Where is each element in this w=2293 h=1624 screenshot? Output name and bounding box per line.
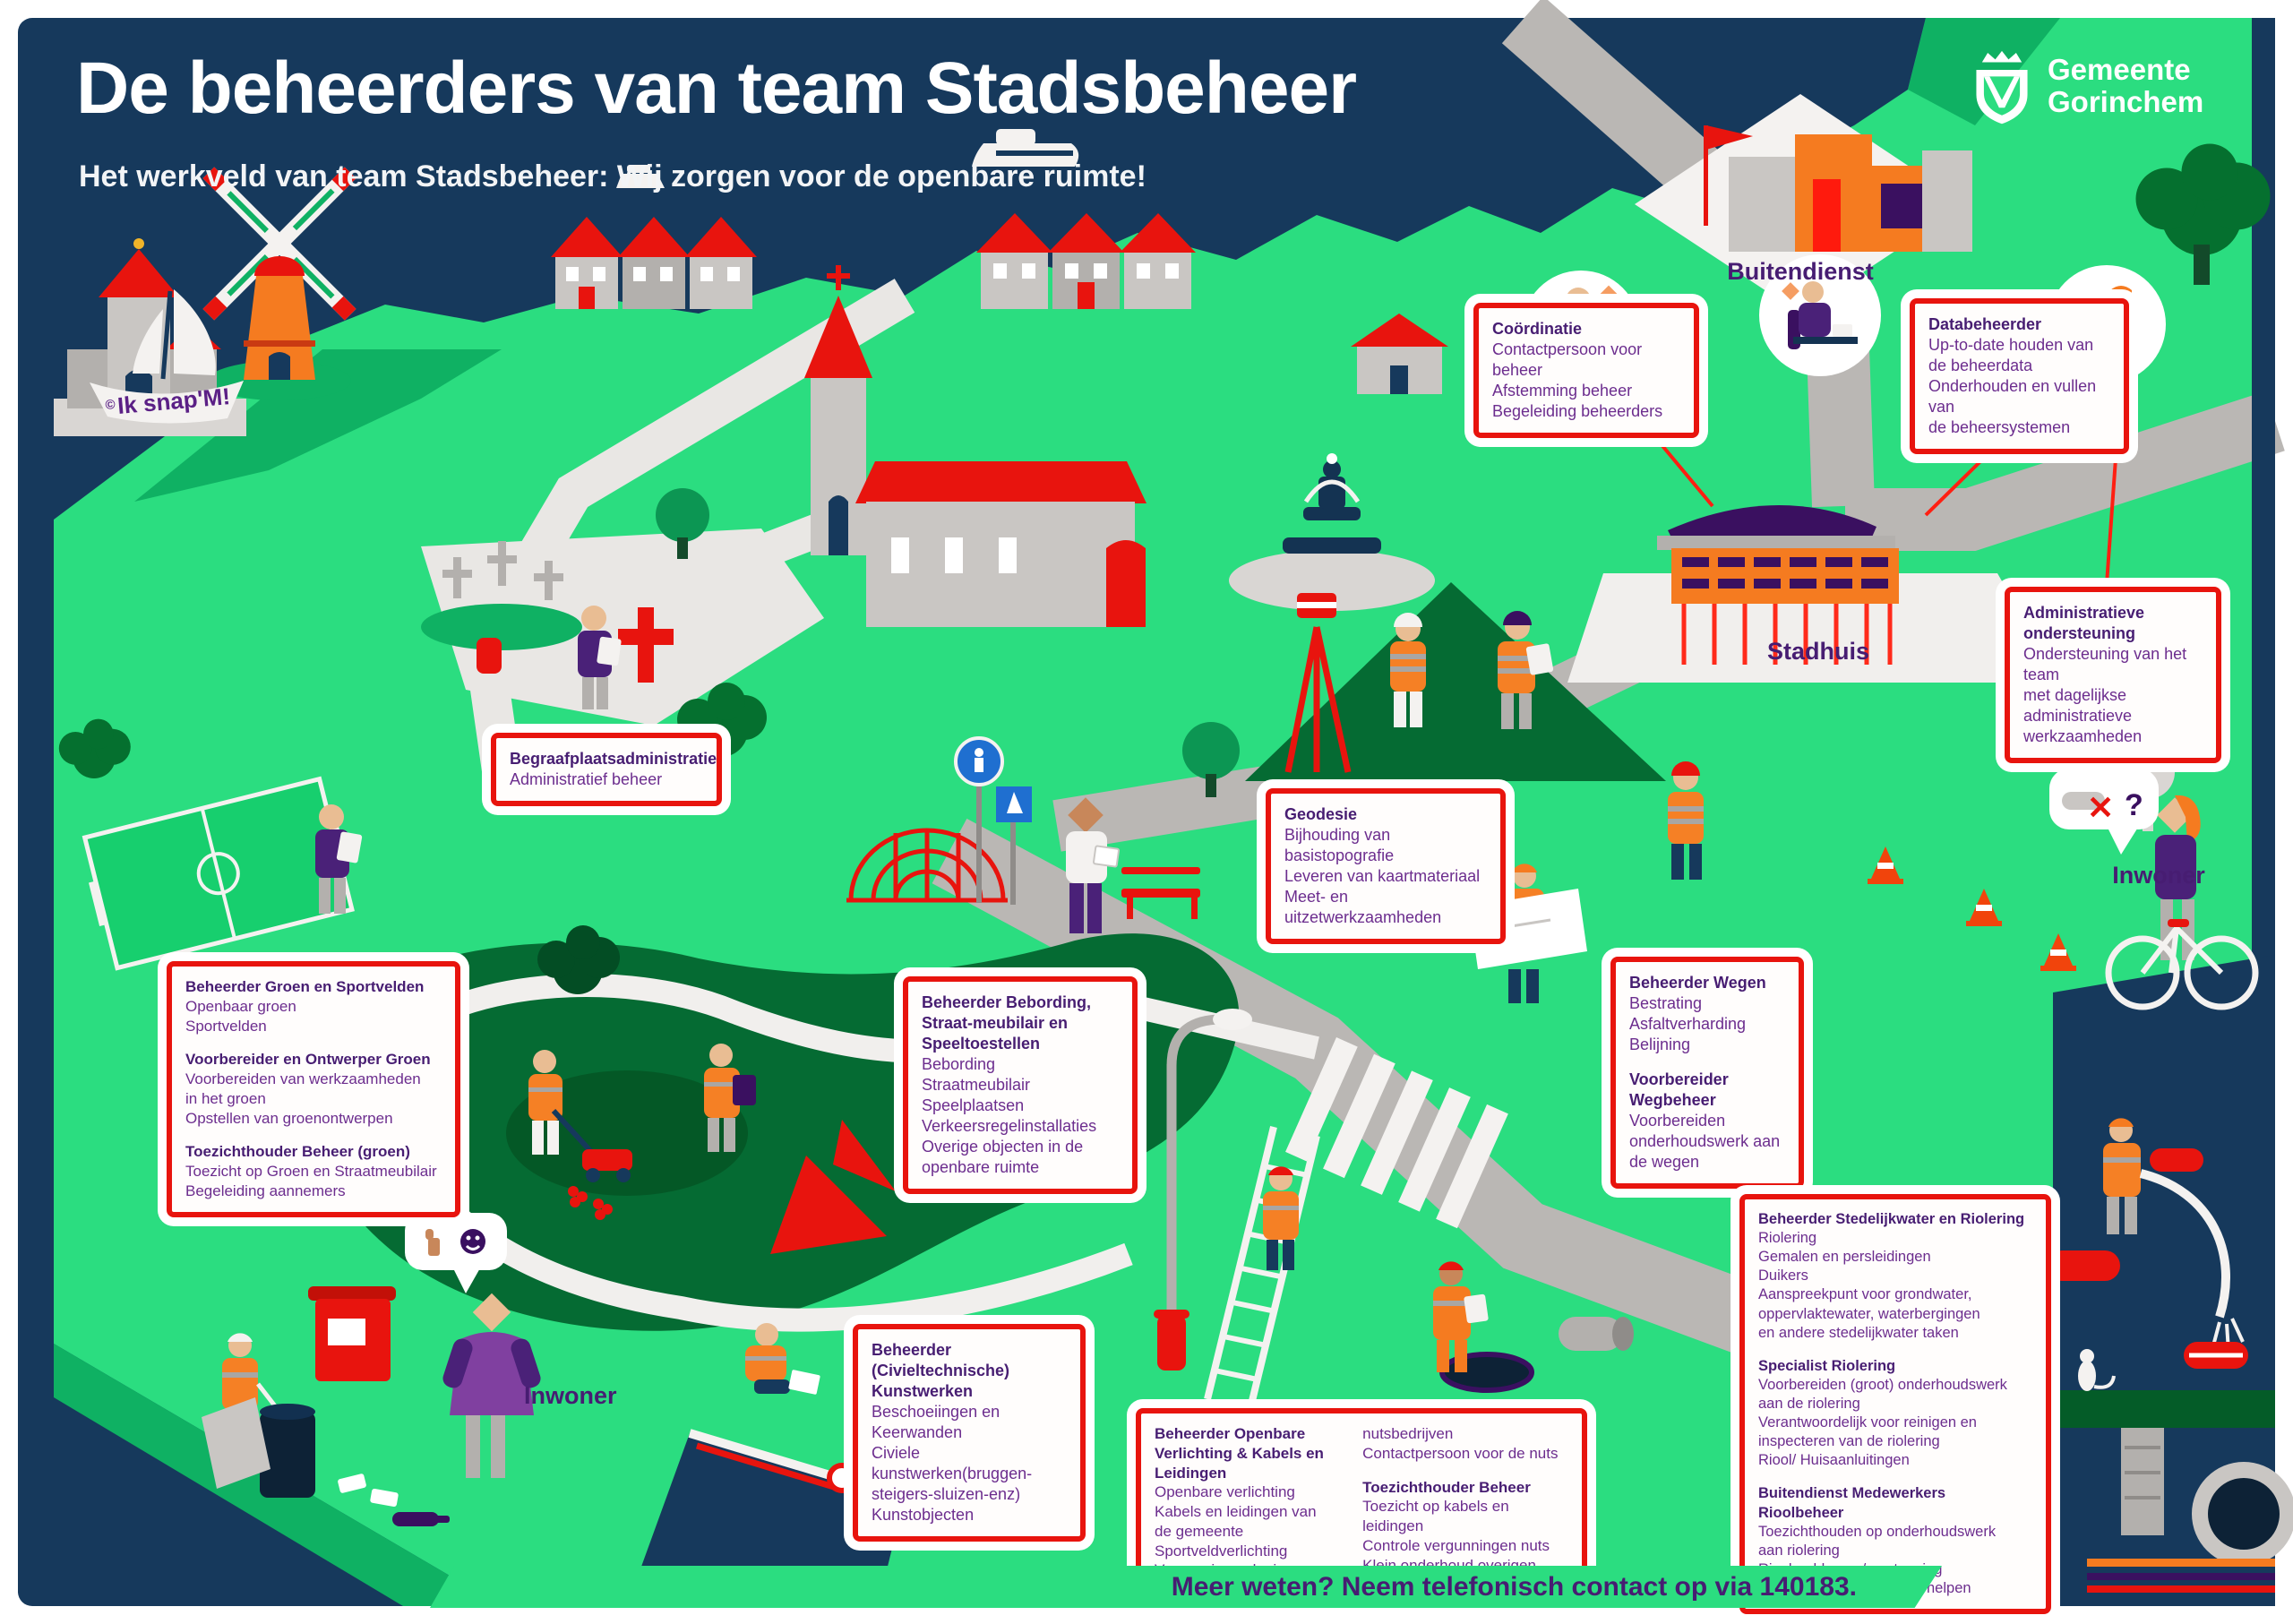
callout-section: Beheerder Openbare Verlichting & Kabels …	[1155, 1424, 1344, 1580]
callout-body: Contactpersoon voor beheer Afstemming be…	[1492, 339, 1680, 422]
callout-body: Toezicht op Groen en Straatmeubilair Beg…	[185, 1162, 442, 1201]
callout-section: Voorbereider Wegbeheer Voorbereiden onde…	[1629, 1070, 1785, 1173]
callout-section: Administratieve ondersteuning Ondersteun…	[2023, 603, 2203, 747]
callout-begraafplaatsadministratie: Begraafplaatsadministratie Administratie…	[491, 733, 722, 806]
callout-section: Beheerder Wegen Bestrating Asfaltverhard…	[1629, 973, 1785, 1055]
callout-section: Beheerder Bebording, Straat-meubilair en…	[922, 992, 1119, 1178]
callout-groen-sportvelden: Beheerder Groen en Sportvelden Openbaar …	[167, 961, 460, 1217]
label-stadhuis: Stadhuis	[1729, 638, 1908, 666]
callout-body: Bebording Straatmeubilair Speelplaatsen …	[922, 1054, 1119, 1178]
label-inwoner-left: Inwoner	[524, 1382, 649, 1410]
callout-section: Begraafplaatsadministratie Administratie…	[510, 749, 703, 790]
waste-container	[308, 1286, 396, 1381]
callout-body: Toezicht op kabels en leidingen Controle…	[1362, 1497, 1568, 1575]
callout-body: Bestrating Asfaltverharding Belijning	[1629, 993, 1785, 1055]
callout-body: Openbaar groen Sportvelden	[185, 997, 442, 1036]
label-inwoner-right: Inwoner	[2096, 862, 2221, 889]
callout-title: Toezichthouder Beheer (groen)	[185, 1142, 442, 1162]
callout-title: Buitendienst Medewerkers Rioolbeheer	[1758, 1484, 2032, 1522]
callout-bebording: Beheerder Bebording, Straat-meubilair en…	[903, 976, 1138, 1194]
ik-snapm-badge: © Ik snap'M!	[73, 282, 257, 434]
callout-section: nutsbedrijven Contactpersoon voor de nut…	[1362, 1424, 1568, 1464]
callout-section: Toezichthouder Beheer Toezicht op kabels…	[1362, 1478, 1568, 1576]
callout-title: Toezichthouder Beheer	[1362, 1478, 1568, 1498]
callout-title: Voorbereider en Ontwerper Groen	[185, 1050, 442, 1070]
callout-stedelijkwater-riolering: Beheerder Stedelijkwater en Riolering Ri…	[1739, 1194, 2051, 1614]
callout-title: Geodesie	[1284, 804, 1487, 825]
callout-kunstwerken: Beheerder (Civieltechnische) Kunstwerken…	[853, 1324, 1086, 1542]
callout-body: Ondersteuning van het team met dagelijks…	[2023, 644, 2203, 747]
smiley-icon	[460, 1229, 485, 1254]
gemeente-gorinchem-logo: Gemeente Gorinchem	[1969, 48, 2203, 125]
callout-body: Riolering Gemalen en persleidingen Duike…	[1758, 1229, 2032, 1343]
callout-column-right: nutsbedrijven Contactpersoon voor de nut…	[1362, 1424, 1568, 1580]
callout-title: Administratieve ondersteuning	[2023, 603, 2203, 644]
page-title: De beheerders van team Stadsbeheer	[76, 47, 1356, 131]
callout-body: nutsbedrijven Contactpersoon voor de nut…	[1362, 1424, 1568, 1464]
trash-bin	[260, 1404, 315, 1498]
callout-databeheerder: Databeheerder Up-to-date houden van de b…	[1910, 298, 2129, 454]
callout-title: Databeheerder	[1928, 314, 2110, 335]
badge-copyright: ©	[105, 397, 116, 413]
callout-title: Begraafplaatsadministratie	[510, 749, 703, 769]
question-icon: ?	[2125, 788, 2143, 822]
callout-title: Beheerder Wegen	[1629, 973, 1785, 993]
callout-wegen: Beheerder Wegen Bestrating Asfaltverhard…	[1610, 957, 1804, 1189]
pipe-segment	[1559, 1317, 1634, 1351]
callout-section: Beheerder (Civieltechnische) Kunstwerken…	[872, 1340, 1067, 1525]
footer-text: Meer weten? Neem telefonisch contact op …	[1172, 1572, 1857, 1603]
callout-body: Beschoeiingen en Keerwanden Civiele kuns…	[872, 1402, 1067, 1525]
footer-bar: Meer weten? Neem telefonisch contact op …	[430, 1566, 1942, 1608]
callout-geodesie: Geodesie Bijhouding van basistopografie …	[1266, 788, 1506, 944]
callout-coordinatie: Coördinatie Contactpersoon voor beheer A…	[1473, 303, 1699, 438]
callout-section: Coördinatie Contactpersoon voor beheer A…	[1492, 319, 1680, 422]
callout-body: Voorbereiden van werkzaamheden in het gr…	[185, 1070, 442, 1128]
callout-section: Geodesie Bijhouding van basistopografie …	[1284, 804, 1487, 928]
callout-body: Voorbereiden (groot) onderhoudswerk aan …	[1758, 1376, 2032, 1471]
page-subtitle: Het werkveld van team Stadsbeheer: Wij z…	[79, 159, 1146, 194]
callout-section: Toezichthouder Beheer (groen) Toezicht o…	[185, 1142, 442, 1200]
callout-section: Beheerder Groen en Sportvelden Openbaar …	[185, 977, 442, 1035]
callout-title: Beheerder (Civieltechnische) Kunstwerken	[872, 1340, 1067, 1402]
callout-title: Beheerder Stedelijkwater en Riolering	[1758, 1210, 2032, 1229]
right-water	[2252, 18, 2275, 967]
shield-crown-icon	[1969, 48, 2035, 125]
callout-section: Beheerder Stedelijkwater en Riolering Ri…	[1758, 1210, 2032, 1343]
callout-administratieve-ondersteuning: Administratieve ondersteuning Ondersteun…	[2005, 587, 2221, 763]
callout-body: Up-to-date houden van de beheerdata Onde…	[1928, 335, 2110, 438]
callout-body: Bijhouding van basistopografie Leveren v…	[1284, 825, 1487, 928]
logo-line1: Gemeente	[2048, 54, 2203, 86]
callout-section: Specialist Riolering Voorbereiden (groot…	[1758, 1357, 2032, 1471]
callout-body: Administratief beheer	[510, 769, 703, 790]
callout-body: Openbare verlichting Kabels en leidingen…	[1155, 1482, 1344, 1580]
logo-line2: Gorinchem	[2048, 86, 2203, 118]
callout-title: Beheerder Groen en Sportvelden	[185, 977, 442, 997]
cross-icon: ✕	[2087, 789, 2114, 826]
callout-column-left: Beheerder Openbare Verlichting & Kabels …	[1155, 1424, 1344, 1580]
label-buitendienst: Buitendienst	[1693, 258, 1908, 286]
callout-title: Specialist Riolering	[1758, 1357, 2032, 1376]
callout-title: Coördinatie	[1492, 319, 1680, 339]
callout-body: Voorbereiden onderhoudswerk aan de wegen	[1629, 1111, 1785, 1173]
row-houses-a	[551, 217, 757, 309]
infographic-poster: ✕ ?	[0, 0, 2293, 1624]
callout-section: Databeheerder Up-to-date houden van de b…	[1928, 314, 2110, 438]
sailboat-icon: © Ik snap'M!	[73, 282, 257, 430]
callout-section: Voorbereider en Ontwerper Groen Voorbere…	[185, 1050, 442, 1128]
callout-title: Beheerder Bebording, Straat-meubilair en…	[922, 992, 1119, 1054]
callout-title: Beheerder Openbare Verlichting & Kabels …	[1155, 1424, 1344, 1482]
row-houses-b	[976, 213, 1196, 309]
callout-title: Voorbereider Wegbeheer	[1629, 1070, 1785, 1111]
